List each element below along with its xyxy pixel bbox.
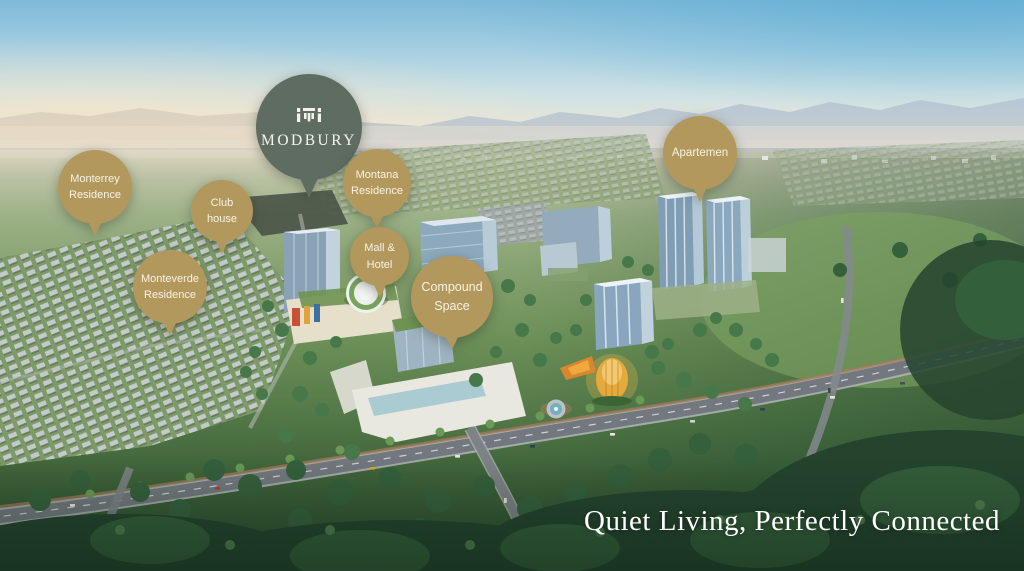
pin-label: Monteverde Residence — [133, 250, 207, 324]
midrise-tower — [594, 278, 654, 350]
map-pin-monterrey-residence[interactable]: Monterrey Residence — [58, 150, 132, 224]
pin-label: Club house — [191, 180, 253, 242]
pin-label: Apartemen — [663, 116, 737, 190]
map-pin-club-house[interactable]: Club house — [191, 180, 253, 242]
pin-tail — [445, 335, 459, 350]
pin-tail — [299, 176, 319, 198]
pin-tail — [163, 321, 177, 336]
apartment-tower-1 — [658, 192, 704, 290]
mall-lower-wing — [330, 360, 526, 442]
pin-label: Monterrey Residence — [58, 150, 132, 224]
pin-tail — [693, 187, 707, 202]
modbury-towers-logo-icon — [297, 105, 321, 125]
map-pin-mall-hotel[interactable]: Mall & Hotel — [350, 227, 409, 286]
pin-tail — [215, 239, 229, 254]
pin-label: Mall & Hotel — [350, 227, 409, 286]
office-cluster-east — [540, 206, 612, 281]
pin-label: Montana Residence — [343, 149, 411, 217]
aerial-masterplan-view: MODBURY Monterrey Residence Club house M… — [0, 0, 1024, 571]
pin-label: Compound Space — [411, 256, 493, 338]
map-pin-montana-residence[interactable]: Montana Residence — [343, 149, 411, 217]
housing-estate-right — [772, 140, 1024, 206]
map-pin-compound-space[interactable]: Compound Space — [411, 256, 493, 338]
map-pin-monteverde-residence[interactable]: Monteverde Residence — [133, 250, 207, 324]
pin-tail — [88, 221, 102, 236]
brand-pin-label: MODBURY — [261, 132, 357, 150]
map-pin-apartemen[interactable]: Apartemen — [663, 116, 737, 190]
tagline: Quiet Living, Perfectly Connected — [584, 505, 1000, 538]
golden-egg-landmark — [586, 354, 638, 406]
pin-tail — [373, 283, 387, 298]
fountain-plaza — [540, 400, 572, 419]
